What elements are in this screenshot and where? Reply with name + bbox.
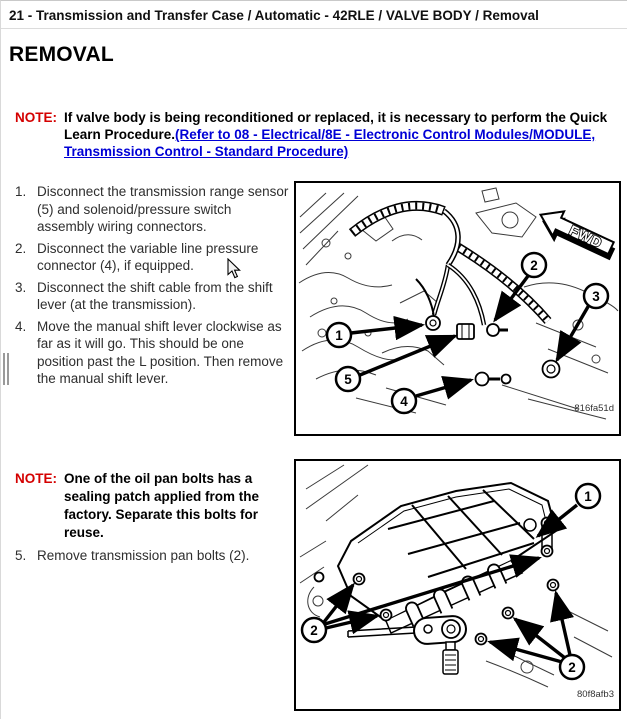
note-sealing-patch: NOTE: One of the oil pan bolts has a sea… <box>15 470 289 542</box>
removal-steps-list: 1. Disconnect the transmission range sen… <box>15 183 292 392</box>
note-quick-learn: NOTE: If valve body is being recondition… <box>15 109 615 160</box>
list-item: 5. Remove transmission pan bolts (2). <box>15 547 315 565</box>
step-text: Disconnect the transmission range sensor… <box>37 183 292 236</box>
wiring-harness <box>352 206 548 325</box>
callout-1: 1 <box>584 489 592 504</box>
step-text: Move the manual shift lever clockwise as… <box>37 318 292 388</box>
oil-pan-illustration: 1 2 2 80f8afb3 <box>296 461 619 709</box>
step-number: 4. <box>15 318 37 388</box>
step-text: Disconnect the shift cable from the shif… <box>37 279 292 314</box>
breadcrumb: 21 - Transmission and Transfer Case / Au… <box>9 8 619 23</box>
list-item: 4. Move the manual shift lever clockwise… <box>15 318 292 388</box>
list-item: 2. Disconnect the variable line pressure… <box>15 240 292 275</box>
callout-1: 1 <box>335 328 343 343</box>
figure-transmission-connectors: FWD 1 2 3 4 <box>294 181 621 436</box>
callout-2-right: 2 <box>568 660 576 675</box>
step-number: 5. <box>15 547 37 565</box>
list-item: 3. Disconnect the shift cable from the s… <box>15 279 292 314</box>
callout-5: 5 <box>344 372 352 387</box>
step-number: 1. <box>15 183 37 236</box>
step-text: Remove transmission pan bolts (2). <box>37 547 315 565</box>
mouse-cursor-icon <box>227 258 243 280</box>
callout-3: 3 <box>592 289 600 304</box>
callout-2-left: 2 <box>310 623 318 638</box>
callout-4: 4 <box>400 394 408 409</box>
note-label: NOTE: <box>15 470 64 542</box>
service-manual-page: 21 - Transmission and Transfer Case / Au… <box>0 0 627 719</box>
fwd-arrow: FWD <box>532 203 619 267</box>
figure2-code: 80f8afb3 <box>577 689 614 700</box>
note-body: If valve body is being reconditioned or … <box>64 109 610 160</box>
list-item: 1. Disconnect the transmission range sen… <box>15 183 292 236</box>
figure-oil-pan-bolts: 1 2 2 80f8afb3 <box>294 459 621 711</box>
harness-connectors <box>426 316 560 386</box>
step-number: 3. <box>15 279 37 314</box>
note-text: One of the oil pan bolts has a sealing p… <box>64 470 289 542</box>
note-label: NOTE: <box>15 109 64 160</box>
title-divider <box>1 28 627 29</box>
figure1-code: 816fa51d <box>574 403 614 414</box>
step-text: Disconnect the variable line pressure co… <box>37 240 292 275</box>
callout-2: 2 <box>530 258 538 273</box>
transmission-connectors-illustration: FWD 1 2 3 4 <box>296 183 619 434</box>
text-caret-marks <box>3 353 9 385</box>
page-title: REMOVAL <box>9 43 114 67</box>
step-number: 2. <box>15 240 37 275</box>
